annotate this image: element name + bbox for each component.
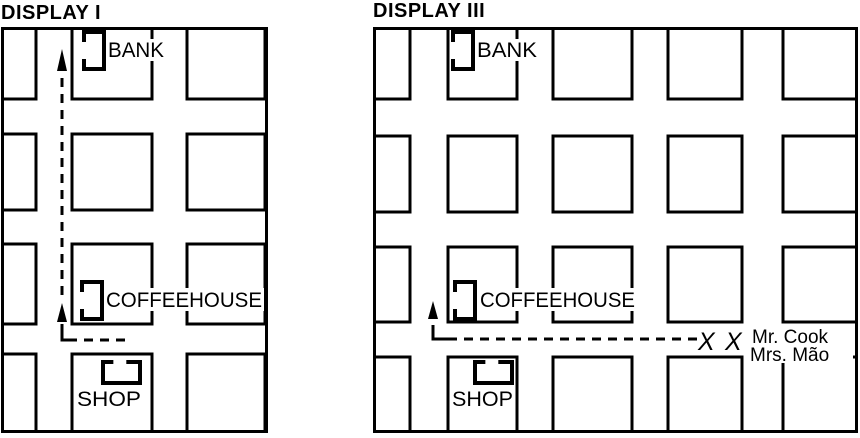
route-arrowhead-icon bbox=[428, 301, 438, 319]
city-block bbox=[187, 134, 265, 210]
city-block bbox=[1, 134, 36, 210]
city-block bbox=[783, 247, 857, 322]
shop-label: SHOP bbox=[77, 388, 141, 411]
display-1: DISPLAY I BANKCOFFEEHOUSESHOP bbox=[1, 2, 268, 433]
route-arrowhead-icon bbox=[57, 49, 67, 71]
coffeehouse-building-icon bbox=[455, 282, 475, 319]
city-block bbox=[373, 247, 410, 322]
bank-building-icon bbox=[84, 32, 104, 69]
map-border bbox=[3, 29, 267, 432]
city-block bbox=[187, 354, 265, 433]
display-3: DISPLAY III BANKCOFFEEHOUSESHOPXXMr. Coo… bbox=[373, 0, 858, 433]
city-block bbox=[553, 136, 632, 212]
display-3-map: BANKCOFFEEHOUSESHOPXXMr. CookMrs. Mão bbox=[373, 27, 858, 433]
city-block bbox=[668, 136, 742, 212]
city-block bbox=[448, 27, 517, 99]
route-corner bbox=[62, 324, 73, 340]
figure-two-map-displays: DISPLAY I BANKCOFFEEHOUSESHOP DISPLAY II… bbox=[0, 0, 860, 438]
shop-label: SHOP bbox=[452, 388, 513, 411]
city-block bbox=[668, 357, 742, 433]
pedestrian-x-mark-1: X bbox=[697, 328, 716, 356]
city-block bbox=[783, 136, 857, 212]
display-1-map: BANKCOFFEEHOUSESHOP bbox=[1, 27, 268, 433]
pedestrian-x-mark-2: X bbox=[724, 328, 743, 356]
coffeehouse-building-icon bbox=[82, 282, 102, 319]
display-1-title: DISPLAY I bbox=[1, 2, 268, 23]
city-block bbox=[448, 136, 517, 212]
city-block bbox=[553, 27, 632, 99]
bank-label: BANK bbox=[477, 39, 537, 62]
shop-building-icon bbox=[103, 362, 140, 383]
shop-building-icon bbox=[475, 362, 512, 383]
coffeehouse-label: COFFEEHOUSE bbox=[480, 289, 635, 312]
city-block bbox=[373, 27, 410, 99]
city-block bbox=[373, 357, 410, 433]
city-block bbox=[668, 247, 742, 322]
bank-label: BANK bbox=[108, 39, 164, 62]
route-arrowhead-icon bbox=[57, 303, 67, 322]
city-block bbox=[783, 27, 857, 99]
city-block bbox=[72, 134, 152, 210]
coffeehouse-label: COFFEEHOUSE bbox=[106, 289, 262, 312]
city-block bbox=[1, 244, 36, 324]
city-block bbox=[1, 27, 36, 99]
city-block bbox=[1, 354, 36, 433]
city-block bbox=[187, 244, 265, 324]
bank-building-icon bbox=[453, 32, 473, 69]
city-block bbox=[553, 357, 632, 433]
city-block bbox=[783, 357, 857, 433]
display-3-title: DISPLAY III bbox=[373, 0, 858, 21]
person-label-mrs-mao: Mrs. Mão bbox=[750, 345, 829, 366]
city-block bbox=[668, 27, 742, 99]
city-block bbox=[187, 27, 265, 99]
route-corner bbox=[433, 325, 449, 339]
city-block bbox=[373, 136, 410, 212]
